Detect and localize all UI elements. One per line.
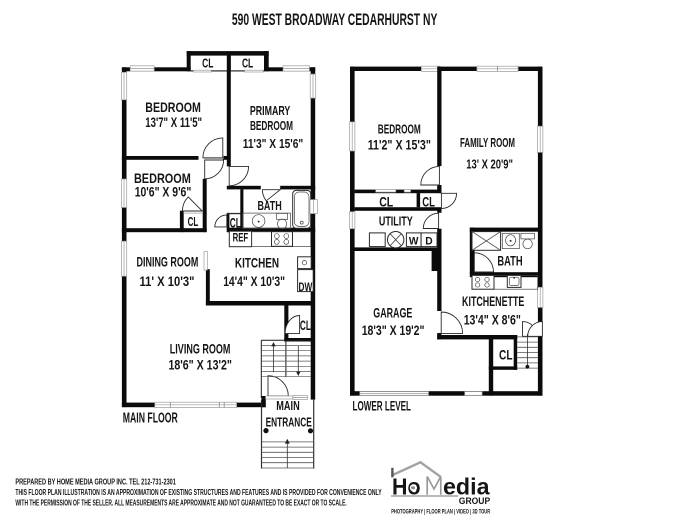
- svg-text:MAIN: MAIN: [276, 399, 299, 413]
- svg-text:11' X 10'3": 11' X 10'3": [140, 273, 195, 289]
- svg-text:CL: CL: [300, 318, 311, 333]
- svg-text:10'6" X 9'6": 10'6" X 9'6": [135, 184, 192, 200]
- svg-text:REF: REF: [233, 233, 249, 245]
- svg-text:UTILITY: UTILITY: [379, 214, 413, 229]
- svg-text:13'7" X 11'5": 13'7" X 11'5": [145, 114, 202, 130]
- svg-text:ENTRANCE: ENTRANCE: [266, 415, 312, 429]
- svg-text:DINING ROOM: DINING ROOM: [137, 254, 199, 270]
- svg-text:CL: CL: [242, 57, 254, 71]
- svg-text:W: W: [409, 235, 419, 247]
- svg-text:CL: CL: [188, 214, 199, 229]
- svg-text:GROUP: GROUP: [459, 496, 491, 507]
- svg-text:13'4" X 8'6": 13'4" X 8'6": [464, 312, 521, 327]
- svg-text:LIVING ROOM: LIVING ROOM: [170, 341, 231, 357]
- svg-text:BATH: BATH: [257, 198, 281, 213]
- svg-text:11'3" X 15'6": 11'3" X 15'6": [243, 136, 304, 151]
- svg-text:PREPARED BY HOME MEDIA GROUP: PREPARED BY HOME MEDIA GROUP INC. TEL 21…: [15, 478, 176, 487]
- svg-text:FAMILY ROOM: FAMILY ROOM: [460, 135, 515, 150]
- svg-text:CL: CL: [202, 57, 214, 71]
- svg-text:CL: CL: [230, 215, 241, 230]
- svg-text:590 WEST BROADWAY CEDARHURST N: 590 WEST BROADWAY CEDARHURST NY: [232, 11, 438, 29]
- svg-text:KITCHEN: KITCHEN: [235, 255, 279, 271]
- svg-text:THIS FLOOR PLAN ILLUSTRATION I: THIS FLOOR PLAN ILLUSTRATION IS AN APPRO…: [15, 488, 382, 497]
- svg-text:BEDROOM: BEDROOM: [250, 118, 293, 133]
- svg-text:BEDROOM: BEDROOM: [145, 99, 201, 115]
- svg-text:WITH THE PERMISSION OF THE SEL: WITH THE PERMISSION OF THE SELLER. ALL M…: [15, 498, 346, 507]
- svg-text:LOWER LEVEL: LOWER LEVEL: [353, 399, 412, 414]
- svg-text:CL: CL: [422, 194, 435, 209]
- svg-text:18'6" X 13'2": 18'6" X 13'2": [168, 357, 232, 373]
- svg-text:13' X 20'9": 13' X 20'9": [466, 157, 513, 172]
- svg-text:BATH: BATH: [497, 253, 522, 268]
- svg-text:PHOTOGRAPHY | FLOOR PLAN | VID: PHOTOGRAPHY | FLOOR PLAN | VIDEO | 3D TO…: [391, 509, 490, 515]
- svg-text:PRIMARY: PRIMARY: [250, 103, 291, 118]
- svg-text:18'3" X 19'2": 18'3" X 19'2": [362, 322, 425, 338]
- svg-text:DW: DW: [299, 282, 313, 294]
- svg-text:BEDROOM: BEDROOM: [378, 122, 421, 136]
- svg-text:GARAGE: GARAGE: [373, 305, 412, 321]
- svg-text:KITCHENETTE: KITCHENETTE: [462, 294, 524, 309]
- svg-text:11'2" X 15'3": 11'2" X 15'3": [368, 138, 431, 153]
- svg-text:CL: CL: [499, 348, 513, 363]
- svg-text:14'4" X 10'3": 14'4" X 10'3": [223, 273, 285, 289]
- svg-text:CL: CL: [379, 194, 393, 209]
- svg-text:MAIN FLOOR: MAIN FLOOR: [123, 410, 178, 426]
- svg-text:D: D: [425, 235, 432, 247]
